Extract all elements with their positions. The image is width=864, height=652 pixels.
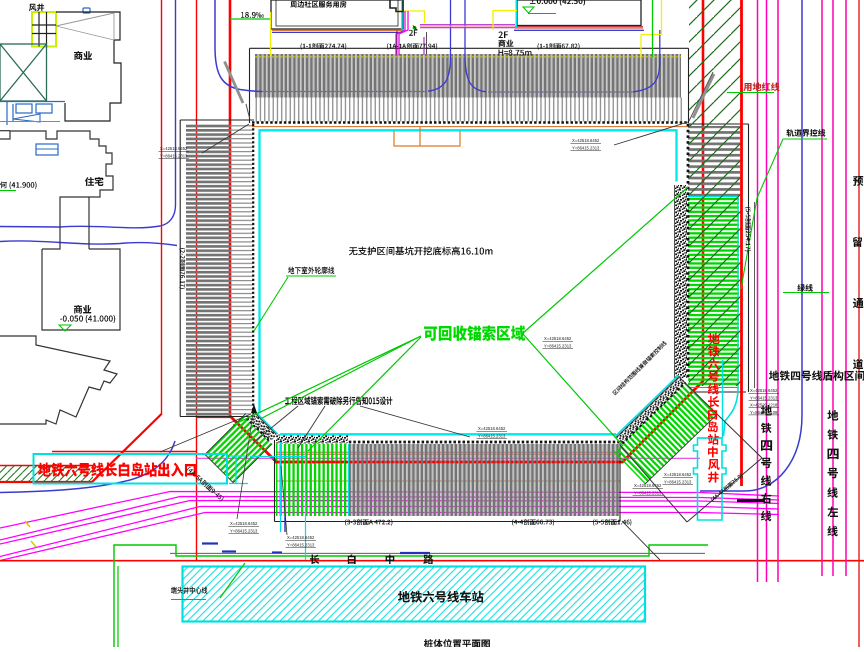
svg-text:Y=86415.2313: Y=86415.2313 <box>287 542 315 547</box>
svg-text:Y=86415.2313: Y=86415.2313 <box>664 479 692 484</box>
svg-text:X=42518.6452: X=42518.6452 <box>478 426 506 431</box>
svg-text:X=42518.6452: X=42518.6452 <box>230 521 258 526</box>
svg-text:Y=86415.2313: Y=86415.2313 <box>572 145 600 150</box>
svg-text:Y=86415.2313: Y=86415.2313 <box>160 153 188 158</box>
svg-text:X=42518.6452: X=42518.6452 <box>287 535 315 540</box>
svg-text:Y=86415.2313: Y=86415.2313 <box>750 395 778 400</box>
svg-text:Y=86415.2313: Y=86415.2313 <box>230 528 258 533</box>
svg-text:X=42518.6452: X=42518.6452 <box>572 138 600 143</box>
svg-text:X=42518.6452: X=42518.6452 <box>160 146 188 151</box>
svg-text:Y=86415.2313: Y=86415.2313 <box>544 343 572 348</box>
svg-text:Y=86415.2313: Y=86415.2313 <box>478 433 506 438</box>
svg-text:X=42518.6452: X=42518.6452 <box>634 483 662 488</box>
svg-text:X=42518.6452: X=42518.6452 <box>664 472 692 477</box>
svg-text:X=42518.6452: X=42518.6452 <box>750 388 778 393</box>
svg-text:Y=86415.2313: Y=86415.2313 <box>634 490 662 495</box>
svg-text:X=42518.6452: X=42518.6452 <box>544 336 572 341</box>
svg-text:X=42520.1218: X=42520.1218 <box>750 403 778 408</box>
svg-text:Y=86424.6108: Y=86424.6108 <box>750 410 778 415</box>
